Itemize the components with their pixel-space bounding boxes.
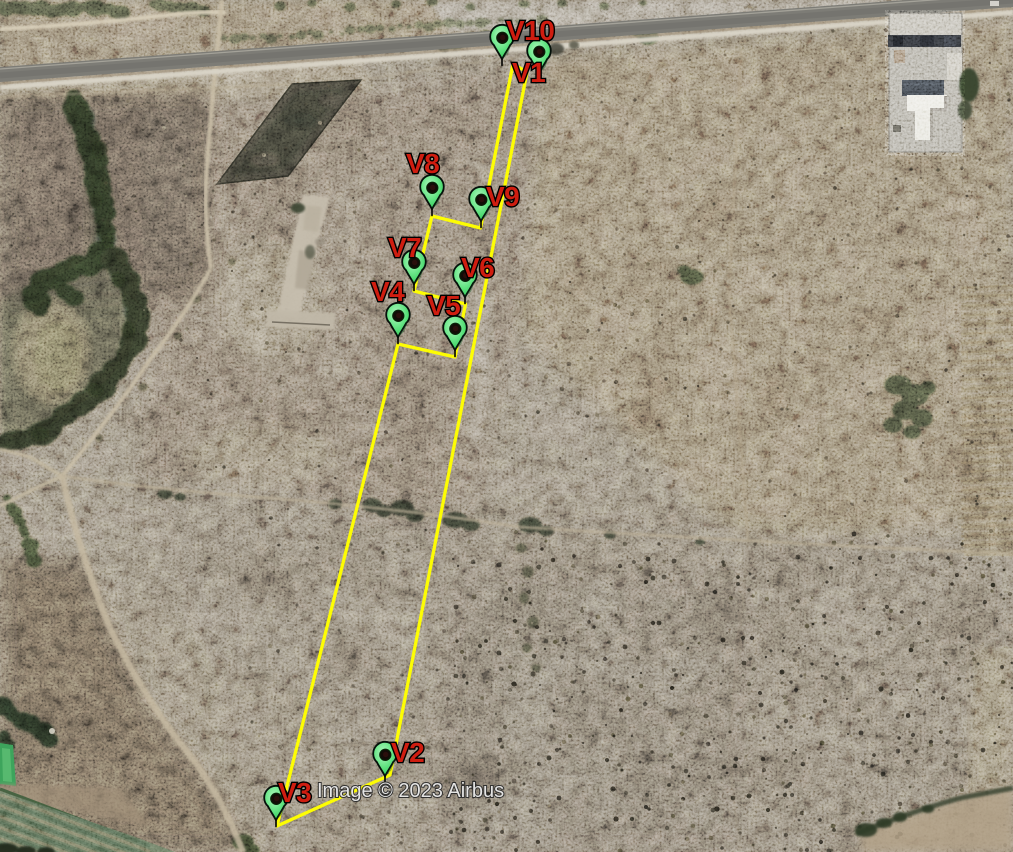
svg-text:V9: V9	[486, 181, 519, 212]
svg-text:V4: V4	[371, 276, 405, 307]
svg-text:V8: V8	[406, 148, 439, 179]
svg-text:V2: V2	[391, 737, 424, 768]
svg-text:V6: V6	[461, 252, 494, 283]
svg-text:V7: V7	[388, 232, 421, 263]
svg-text:V10: V10	[506, 15, 554, 46]
svg-text:V1: V1	[512, 57, 545, 88]
svg-text:V3: V3	[278, 777, 311, 808]
svg-text:Image © 2023 Airbus: Image © 2023 Airbus	[317, 780, 504, 802]
svg-text:V5: V5	[427, 290, 460, 321]
